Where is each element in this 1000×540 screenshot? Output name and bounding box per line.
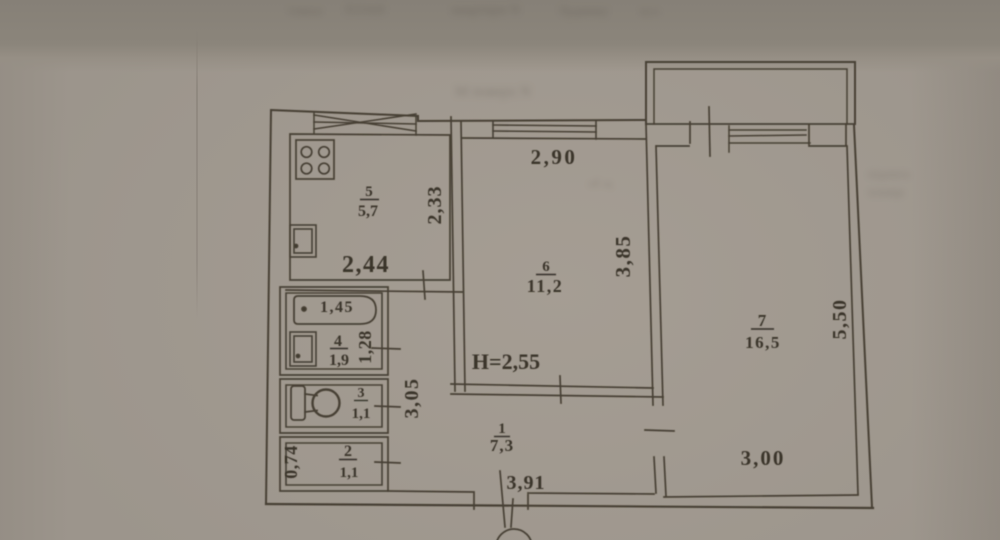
svg-text:1,9: 1,9 [329,352,349,369]
svg-text:2,90: 2,90 [531,145,578,169]
svg-text:3: 3 [358,386,365,401]
svg-text:1,28: 1,28 [355,330,375,364]
svg-text:2,44: 2,44 [342,252,390,278]
svg-text:11,2: 11,2 [527,276,564,296]
svg-text:5: 5 [365,184,373,200]
svg-text:3,91: 3,91 [507,472,546,494]
svg-text:6: 6 [542,259,550,275]
svg-text:Н=2,55: Н=2,55 [472,349,540,374]
svg-text:1: 1 [498,421,506,437]
svg-text:5,7: 5,7 [358,203,378,220]
svg-text:1,45: 1,45 [320,299,354,316]
svg-text:2: 2 [344,443,352,460]
svg-text:0,74: 0,74 [281,445,301,479]
svg-text:3,00: 3,00 [741,446,786,470]
svg-text:16,5: 16,5 [745,333,781,352]
svg-text:3,85: 3,85 [611,235,635,278]
svg-text:3,05: 3,05 [401,378,423,419]
svg-text:4: 4 [334,333,342,350]
svg-text:2,33: 2,33 [424,186,446,225]
svg-text:5,50: 5,50 [829,299,851,340]
svg-text:1,1: 1,1 [340,465,359,481]
svg-text:7,3: 7,3 [490,436,514,455]
svg-text:1,1: 1,1 [352,406,371,422]
svg-text:7: 7 [758,311,767,330]
